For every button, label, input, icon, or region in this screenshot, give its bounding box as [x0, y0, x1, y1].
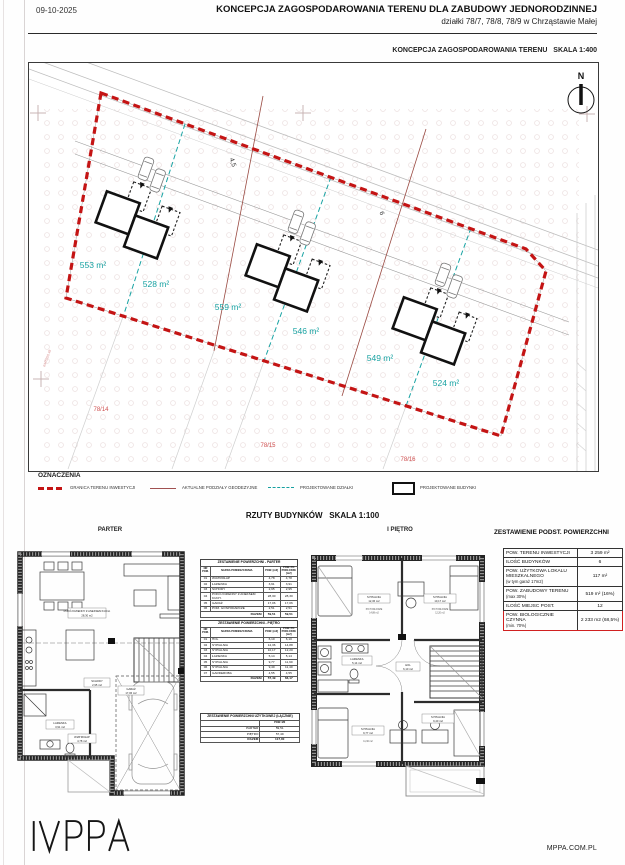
site-plan: 6445250.48: [28, 62, 599, 472]
legend-swatch-boundary: [38, 487, 64, 490]
plot-area-label: 546 m²: [293, 326, 320, 336]
floorplans-scale: SKALA 1:100: [329, 511, 379, 520]
parter-room-labels: POKÓJ DZIENNY Z ANEKSEM KUCH. 28,30 m2 S…: [46, 608, 144, 743]
legend-label-proposed-buildings: PROJEKTOWANE BUDYNKI: [420, 485, 476, 490]
parcel-label: 78/14: [93, 407, 109, 413]
svg-text:4,78 m2: 4,78 m2: [77, 739, 87, 743]
svg-text:SYPIALNIA: SYPIALNIA: [433, 595, 447, 599]
svg-text:HOL: HOL: [405, 663, 411, 667]
room-label: SYPIALNIA 10,17 m2 PO PODŁODZE 12,20 m2: [424, 594, 456, 615]
room-label: SCHODY 2,95 m2: [84, 678, 110, 687]
legend-swatch-proposed-plots: [268, 487, 294, 488]
date: 09-10-2025: [36, 6, 77, 15]
legend-label-proposed-plots: PROJEKTOWANE DZIAŁKI: [300, 485, 353, 490]
svg-text:SYPIALNIA: SYPIALNIA: [361, 727, 375, 731]
floorplans-title-text: RZUTY BUDYNKÓW: [246, 511, 323, 520]
summary-row: POW. ZABUDOWY TERENU (max 30%) 519 m² (1…: [504, 587, 623, 602]
right-road-strip: [577, 195, 595, 471]
svg-text:PO PODŁODZE: PO PODŁODZE: [432, 609, 449, 611]
header-rule: [28, 33, 597, 34]
table-total-row: RAZEM57,4966,17: [201, 676, 298, 682]
room-label: HOL 6,10 m2: [396, 662, 420, 671]
room-label: GARAŻ 17,06 m2: [118, 686, 144, 695]
combined-area-table: ZESTAWIENIE POWIERZCHNI UŻYTKOWEJ (ŁĄCZN…: [200, 713, 300, 743]
svg-text:17,06 m2: 17,06 m2: [125, 691, 137, 695]
summary-table-title: ZESTAWIENIE PODST. POWIERZCHNI: [494, 529, 609, 536]
svg-text:5,14 m2: 5,14 m2: [352, 661, 362, 665]
parter-room-table-title: ZESTAWIENIE POWIERZCHNI - PARTER: [200, 559, 298, 566]
svg-text:ŁAZIENKA: ŁAZIENKA: [351, 657, 364, 661]
site-plan-drawing: 6445250.48: [29, 63, 598, 471]
svg-text:11,90 m2: 11,90 m2: [363, 741, 373, 743]
plot-area-label: 553 m²: [80, 260, 107, 270]
summary-row: ILOŚĆ BUDYNKÓW6: [504, 558, 623, 567]
room-label: SYPIALNIA 12,36 m2 PO PODŁODZE 14,88 m2: [358, 594, 390, 615]
siteplan-scale: SKALA 1:400: [553, 47, 597, 54]
document-page: 09-10-2025 KONCEPCJA ZAGOSPODAROWANIA TE…: [0, 0, 625, 865]
room-label: SYPIALNIA 9,77 m2 11,90 m2: [352, 726, 384, 743]
website-text: MPPA.COM.PL: [547, 845, 597, 852]
svg-text:14,88 m2: 14,88 m2: [369, 613, 379, 615]
col-header: NR POM.: [201, 567, 211, 577]
summary-table: POW. TERENU INWESTYCJI3 259 m² ILOŚĆ BUD…: [503, 548, 623, 631]
summary-row: ILOŚĆ MIEJSC POST.12: [504, 602, 623, 611]
room-label: POKÓJ DZIENNY Z ANEKSEM KUCH. 28,30 m2: [64, 608, 111, 618]
siteplan-caption-text: KONCEPCJA ZAGOSPODAROWANIA TERENU: [392, 47, 547, 54]
scan-edge-line: [3, 0, 4, 865]
summary-row: POW. UŻYTKOWA LOKALU MIESZKALNEGO (w tym…: [504, 567, 623, 587]
table-total-row: RAZEM117,00: [201, 737, 300, 743]
pietro-room-table: ZESTAWIENIE POWIERZCHNI - PIĘTRO NR POM.…: [200, 620, 298, 682]
legend-swatch-existing-division: [150, 488, 176, 489]
col-header: POW. [m2]: [263, 628, 280, 638]
svg-text:SYPIALNIA: SYPIALNIA: [431, 715, 445, 719]
summary-row: POW. TERENU INWESTYCJI3 259 m²: [504, 549, 623, 558]
summary-row-highlighted: POW. BIOLOGICZNIE CZYNNA (min. 70%) 2 23…: [504, 611, 623, 631]
svg-text:3,91 m2: 3,91 m2: [55, 725, 65, 729]
svg-text:12,20 m2: 12,20 m2: [435, 613, 445, 615]
floorplans-title: RZUTY BUDYNKÓW SKALA 1:100: [0, 511, 625, 520]
svg-text:9,77 m2: 9,77 m2: [363, 731, 373, 735]
svg-text:9,40 m2: 9,40 m2: [433, 719, 443, 723]
pietro-caption: I PIĘTRO: [350, 527, 450, 533]
room-label: SYPIALNIA 9,40 m2: [422, 714, 454, 723]
combined-area-table-title: ZESTAWIENIE POWIERZCHNI UŻYTKOWEJ (ŁĄCZN…: [200, 713, 300, 720]
parter-floor-plan: POKÓJ DZIENNY Z ANEKSEM KUCH. 28,30 m2 S…: [12, 542, 200, 804]
parcel-label: 78/15: [260, 443, 276, 449]
siteplan-caption: KONCEPCJA ZAGOSPODAROWANIA TERENU SKALA …: [392, 47, 597, 54]
mppa-logo: [30, 812, 130, 860]
parter-caption: PARTER: [60, 527, 160, 533]
table-row: 04POKÓJ DZIENNY Z ANEKSEM KUCH.28,3028,3…: [201, 593, 298, 601]
page-title: KONCEPCJA ZAGOSPODAROWANIA TERENU DLA ZA…: [216, 4, 597, 15]
legend-label-existing-division: AKTUALNE PODZIAŁY GEODEZYJNE: [182, 485, 257, 490]
svg-text:6,10 m2: 6,10 m2: [403, 667, 413, 671]
pietro-room-labels: SYPIALNIA 12,36 m2 PO PODŁODZE 14,88 m2 …: [342, 594, 456, 743]
plot-area-label: 549 m²: [367, 353, 394, 363]
room-label: ŁAZIENKA 5,14 m2: [342, 656, 372, 665]
pietro-floor-plan: SYPIALNIA 12,36 m2 PO PODŁODZE 14,88 m2 …: [302, 542, 498, 804]
plot-area-label: 524 m²: [433, 378, 460, 388]
svg-text:PO PODŁODZE: PO PODŁODZE: [366, 609, 383, 611]
north-label: N: [578, 71, 585, 81]
room-label: WIATROŁAP 4,78 m2: [68, 734, 96, 743]
col-header: NAZWA POMIESZCZENIA: [211, 567, 264, 577]
plot-area-label: 528 m²: [143, 279, 170, 289]
svg-text:SCHODY: SCHODY: [91, 679, 103, 683]
svg-text:10,17 m2: 10,17 m2: [434, 599, 446, 603]
col-header: POW. PO PODŁODZE [m2]: [280, 628, 297, 638]
page-subtitle: działki 78/7, 78/8, 78/9 w Chrząstawie M…: [441, 17, 597, 26]
pietro-room-table-title: ZESTAWIENIE POWIERZCHNI - PIĘTRO: [200, 620, 298, 627]
parcel-label: 78/16: [400, 457, 416, 463]
svg-text:WIATROŁAP: WIATROŁAP: [74, 735, 90, 739]
room-label: ŁAZIENKA 3,91 m2: [46, 720, 74, 729]
parter-room-table: ZESTAWIENIE POWIERZCHNI - PARTER NR POM.…: [200, 559, 298, 618]
col-header: NAZWA POMIESZCZENIA: [211, 628, 264, 638]
svg-text:SYPIALNIA: SYPIALNIA: [367, 595, 381, 599]
col-header: POW. [m2]: [263, 567, 280, 577]
table-total-row: RAZEM59,5159,51: [201, 612, 298, 618]
svg-text:12,36 m2: 12,36 m2: [368, 599, 380, 603]
col-header: POW. PO PODŁODZE [m2]: [280, 567, 297, 577]
legend-label-boundary: GRANICA TERENU INWESTYCJI: [70, 485, 135, 490]
svg-text:ŁAZIENKA: ŁAZIENKA: [54, 721, 67, 725]
plot-area-label: 559 m²: [215, 302, 242, 312]
legend-swatch-proposed-buildings: [392, 482, 415, 495]
north-arrow-icon: N: [568, 71, 594, 113]
legend-title: OZNACZENIA: [38, 472, 81, 479]
svg-text:28,30 m2: 28,30 m2: [81, 614, 93, 618]
col-header: NR POM.: [201, 628, 211, 638]
svg-text:2,95 m2: 2,95 m2: [92, 683, 102, 687]
